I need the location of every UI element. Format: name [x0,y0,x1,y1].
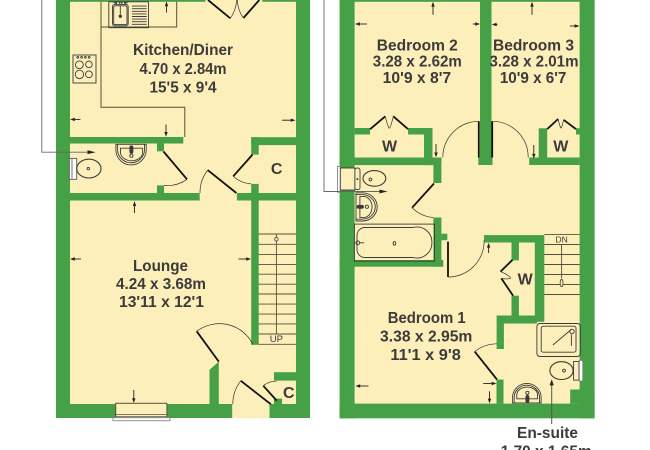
svg-text:Bedroom 3: Bedroom 3 [493,37,574,54]
svg-text:4.24 x 3.68m: 4.24 x 3.68m [116,276,206,293]
svg-text:3.28 x 2.01m: 3.28 x 2.01m [490,54,579,71]
svg-text:Lounge: Lounge [133,258,188,275]
svg-text:W: W [518,272,534,289]
svg-text:UP: UP [270,334,283,345]
svg-text:Bedroom 2: Bedroom 2 [377,37,458,54]
svg-text:Kitchen/Diner: Kitchen/Diner [133,42,233,59]
svg-text:4.70 x 2.84m: 4.70 x 2.84m [140,61,227,78]
svg-text:1.70 x 1.65m: 1.70 x 1.65m [501,443,592,450]
svg-text:11'1 x 9'8: 11'1 x 9'8 [390,347,460,364]
svg-text:Bedroom 1: Bedroom 1 [388,310,466,327]
svg-text:C: C [283,385,295,402]
svg-text:3.38 x 2.95m: 3.38 x 2.95m [380,328,472,345]
svg-text:DN: DN [555,234,567,244]
svg-text:C: C [271,161,283,178]
svg-text:W: W [382,139,398,156]
svg-text:10'9 x 8'7: 10'9 x 8'7 [383,70,452,87]
svg-text:15'5 x 9'4: 15'5 x 9'4 [150,79,217,96]
svg-text:En-suite: En-suite [517,425,578,442]
svg-text:3.28 x 2.62m: 3.28 x 2.62m [373,54,462,71]
svg-text:10'9 x 6'7: 10'9 x 6'7 [500,70,567,87]
svg-text:W: W [553,139,569,156]
svg-text:13'11 x 12'1: 13'11 x 12'1 [119,294,204,311]
